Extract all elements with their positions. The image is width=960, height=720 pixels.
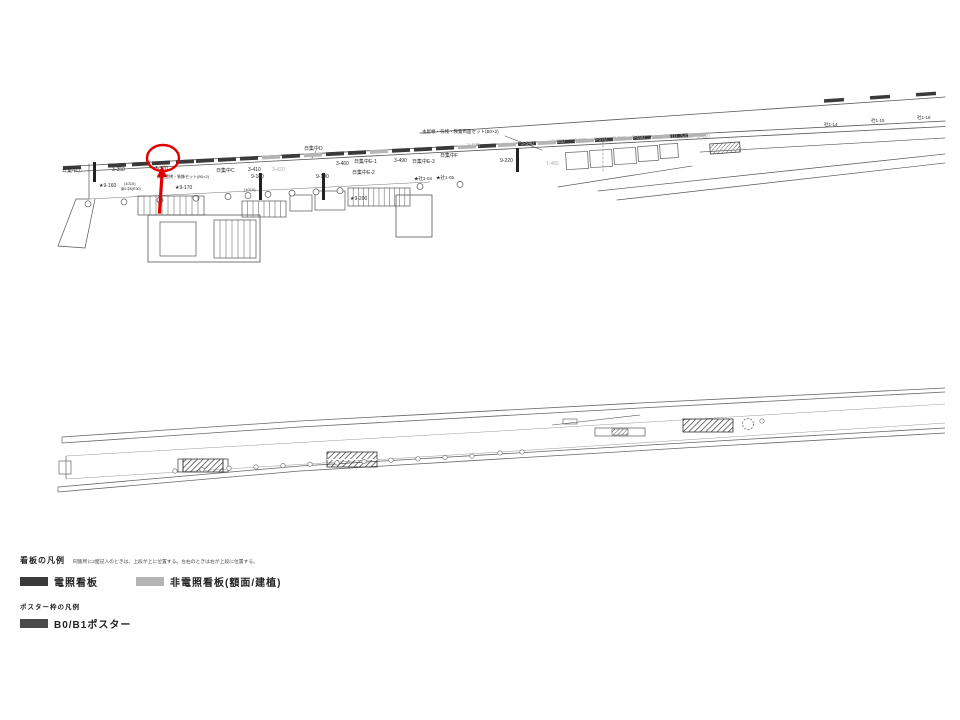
room-block xyxy=(290,195,312,211)
plan-label: 日集中E-3 xyxy=(412,158,435,165)
non-illuminated-sign-label: 非電照看板(額面/建植) xyxy=(170,574,281,589)
sign-bar xyxy=(498,142,516,147)
plan-label: ★社1-04 xyxy=(414,175,433,182)
column-circle xyxy=(337,188,343,194)
plan-label: 日集中F xyxy=(440,152,458,159)
column-circle xyxy=(245,192,251,198)
company-sign-bar xyxy=(870,95,890,100)
company-sign-bar xyxy=(916,92,936,97)
plan-label: 3-580 xyxy=(613,136,626,142)
company-sign-bar xyxy=(824,98,844,103)
roof-line xyxy=(420,97,945,133)
plan-label: 9-190 xyxy=(316,174,329,180)
platform-outer-top-1 xyxy=(62,388,945,437)
pillar-sign-bar xyxy=(93,162,96,182)
highlight-arrow-shaft xyxy=(160,175,163,212)
plan-label: 日集中E-2 xyxy=(352,169,375,176)
stair-comb xyxy=(214,220,256,258)
column-circle xyxy=(498,451,502,455)
plan-label: ★9-170 xyxy=(175,185,192,191)
kiosk xyxy=(660,144,679,159)
kiosk xyxy=(614,147,637,164)
plan-label: 3-350 xyxy=(112,167,125,173)
plan-label: 3-420 xyxy=(272,167,285,173)
room-block xyxy=(396,195,432,237)
plan-label: 主屋根・背桟・鞍置両面セット(B0×2) xyxy=(422,128,499,135)
stair-outline xyxy=(595,428,645,436)
plan-label: (1010) xyxy=(124,181,136,186)
plan-label: 社1-16 xyxy=(917,114,931,121)
plan-label: 社1-15 xyxy=(871,117,885,124)
plan-label: 3-570 xyxy=(594,137,607,143)
plan-label: 3-520 xyxy=(467,143,480,149)
kiosk xyxy=(566,151,589,169)
non-illuminated-sign-swatch xyxy=(136,577,164,586)
plan-label: 3-490 xyxy=(394,158,407,164)
plan-label: 南1中6(R30) xyxy=(121,186,141,191)
sign-bar xyxy=(478,143,496,148)
sign-bar xyxy=(370,149,388,154)
illuminated-sign-label: 電照看板 xyxy=(54,574,98,589)
column-circle xyxy=(457,181,463,187)
column-circle xyxy=(760,419,764,423)
plan-label: 社1-14 xyxy=(824,121,838,128)
plan-label: 3-610 xyxy=(664,134,677,140)
band-lower-line xyxy=(75,127,945,172)
plan-label: ★9-200 xyxy=(350,196,367,202)
plan-label: 3-550 xyxy=(552,139,565,145)
column-circle xyxy=(362,459,366,463)
escalator-block xyxy=(327,452,377,467)
plan-label: 3-590 xyxy=(632,135,645,141)
column-circle xyxy=(416,457,420,461)
plan-label: 3-600 xyxy=(650,135,663,141)
legend: 看板の凡例 同箇所に2面記入のときは、上段が上に位置する。左右のときは右が上段に… xyxy=(20,555,450,631)
column-circle xyxy=(389,458,393,462)
sign-bar xyxy=(282,154,300,159)
platform-outer-bottom-1 xyxy=(58,428,945,487)
column-circle xyxy=(200,467,204,471)
plan-label: 9-180 xyxy=(251,174,264,180)
column-circle xyxy=(417,183,423,189)
sign-bar xyxy=(218,157,236,162)
column-circle xyxy=(281,463,285,467)
kiosk xyxy=(638,145,659,161)
column-circle xyxy=(225,193,231,199)
sign-bar xyxy=(240,156,258,161)
poster-frame-swatch xyxy=(20,619,48,628)
column-circle xyxy=(313,189,319,195)
sign-bar xyxy=(348,150,366,155)
column-circle xyxy=(85,201,91,207)
sign-bar xyxy=(196,158,214,163)
plan-label: ★社1-05 xyxy=(436,174,455,181)
plan-label: ★9-160 xyxy=(99,183,116,189)
plan-label: (1010) xyxy=(244,187,256,192)
plan-label: 3-540 xyxy=(521,141,534,147)
sign-bar xyxy=(304,153,322,158)
sign-bar xyxy=(414,147,432,152)
plan-label: 3-410 xyxy=(248,167,261,173)
kiosk xyxy=(590,149,613,167)
illuminated-sign-swatch xyxy=(20,577,48,586)
column-circle xyxy=(443,455,447,459)
plan-label: 3-630 xyxy=(697,134,710,140)
plan-label: 1-480 xyxy=(546,161,559,167)
escalator-block xyxy=(683,419,754,433)
wedge-line-2 xyxy=(617,163,945,200)
plan-label: 日集中C xyxy=(216,167,235,174)
column-circle xyxy=(289,190,295,196)
plan-label: 3-620 xyxy=(680,134,693,140)
plan-label: 3-460 xyxy=(336,161,349,167)
column-circle xyxy=(254,465,258,469)
legend-poster-title: ポスター枠の凡例 xyxy=(20,601,450,611)
room-block xyxy=(160,222,196,256)
left-fixture xyxy=(59,461,71,474)
sign-bar xyxy=(152,161,170,166)
bottom-plan-drawing xyxy=(58,388,945,492)
plan-label: 9-220 xyxy=(500,158,513,164)
column-circle xyxy=(265,191,271,197)
sign-bar xyxy=(392,148,410,153)
legend-sign-note: 同箇所に2面記入のときは、上段が上に位置する。左右のときは右が上段に位置する。 xyxy=(73,558,258,565)
sign-bar xyxy=(436,146,454,151)
column-circle xyxy=(470,454,474,458)
plan-label: 日集中① xyxy=(62,167,82,174)
column-circle xyxy=(121,199,127,205)
column-circle xyxy=(335,461,339,465)
sign-bar xyxy=(326,151,344,156)
plan-label: 日集中D xyxy=(304,145,323,152)
hatched-sign-block xyxy=(710,142,741,154)
column-circle xyxy=(308,462,312,466)
poster-frame-label: B0/B1ポスター xyxy=(54,616,131,631)
platform-inner-1 xyxy=(66,404,945,456)
column-circle xyxy=(520,450,524,454)
legend-sign-title: 看板の凡例 xyxy=(20,555,65,566)
plan-label: 日集中E-1 xyxy=(354,158,377,165)
pillar-sign-bar xyxy=(516,148,519,172)
column-circle xyxy=(173,469,177,473)
sign-bar xyxy=(262,155,280,160)
plan-label: 3-560 xyxy=(574,138,587,144)
column-circle xyxy=(227,466,231,470)
signage-location-drawing-page: { "colors": { "highlight": "#e00000", "d… xyxy=(0,0,960,720)
top-plan-drawing: 日集中①3-350★9-1603-370仮設置桟・装飾セット(B0×2)★9-1… xyxy=(58,92,945,262)
